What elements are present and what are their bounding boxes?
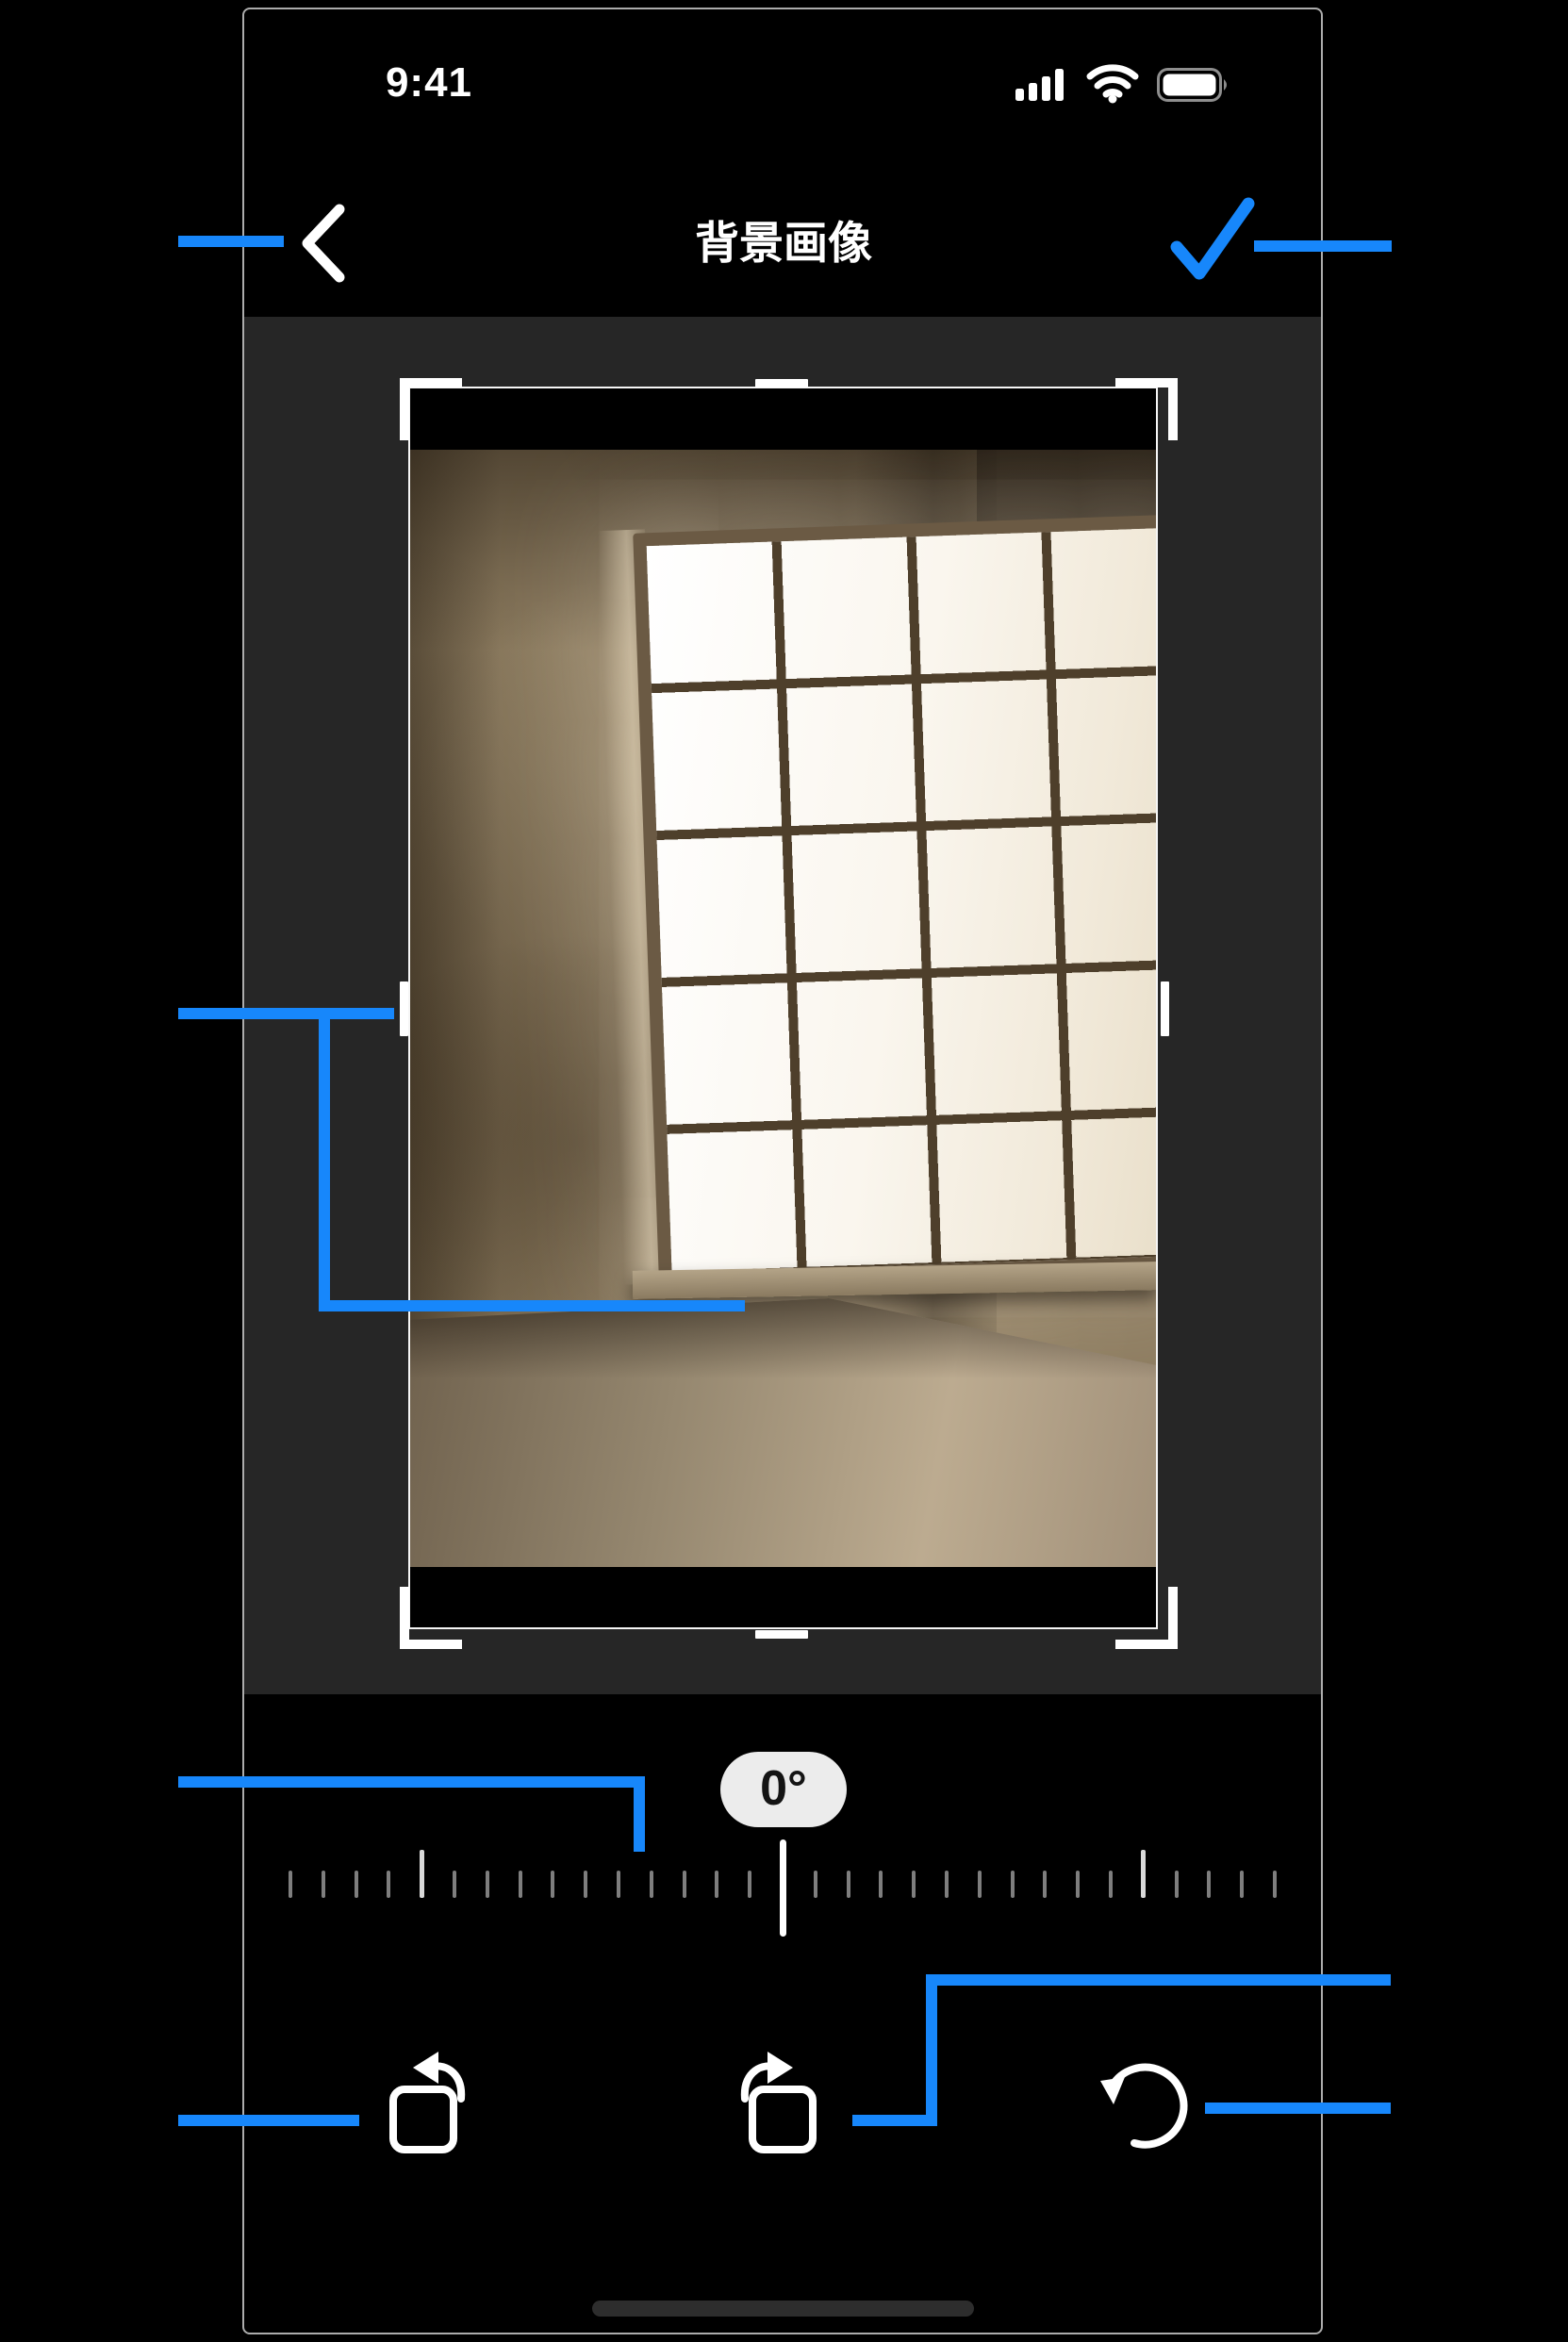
crop-edge-handle-bottom[interactable] (755, 1630, 808, 1639)
dial-tick (355, 1871, 358, 1898)
callout-line-crop-handle-h (178, 1008, 394, 1019)
dial-tick (519, 1871, 522, 1898)
crop-corner-handle-bottom-right[interactable] (1115, 1587, 1178, 1649)
rotate-ccw-button[interactable] (375, 2040, 479, 2153)
callout-line-confirm-button (1254, 240, 1392, 252)
rotate-cw-button[interactable] (727, 2040, 831, 2153)
rotate-counterclockwise-icon (393, 2052, 461, 2150)
callout-line-crop-handle-v (319, 1008, 330, 1311)
dial-major-tick (420, 1850, 424, 1898)
dial-tick (1240, 1871, 1244, 1898)
dial-tick (486, 1871, 489, 1898)
dial-major-tick (1141, 1850, 1146, 1898)
callout-line-dial-h (178, 1776, 645, 1788)
dial-tick (1207, 1871, 1211, 1898)
angle-value-badge: 0° (720, 1752, 847, 1827)
dial-tick (584, 1871, 587, 1898)
dial-tick (814, 1871, 817, 1898)
reset-rotation-button[interactable] (1098, 2058, 1192, 2152)
rotate-clockwise-icon (745, 2052, 813, 2150)
dial-tick (322, 1871, 325, 1898)
callout-line-rotate-cw-v (926, 1974, 937, 2126)
callout-line-rotate-cw-h (926, 1974, 1391, 1986)
callout-line-reset (1205, 2103, 1391, 2114)
crop-corner-handle-top-right[interactable] (1115, 378, 1178, 440)
crop-corner-handle-top-left[interactable] (400, 378, 462, 440)
dial-tick (945, 1871, 949, 1898)
dial-tick (847, 1871, 850, 1898)
callout-line-crop-area (319, 1300, 745, 1311)
dial-tick (551, 1871, 554, 1898)
dial-tick (1109, 1871, 1113, 1898)
crop-edge-handle-top[interactable] (755, 379, 808, 388)
crop-corner-handle-bottom-left[interactable] (400, 1587, 462, 1649)
callout-line-rotate-ccw (178, 2115, 359, 2126)
dial-tick (289, 1871, 292, 1898)
dial-tick (650, 1871, 653, 1898)
dial-tick (879, 1871, 883, 1898)
dial-tick (912, 1871, 916, 1898)
dial-tick (683, 1871, 686, 1898)
dial-tick (617, 1871, 620, 1898)
reset-rotation-icon (1100, 2068, 1183, 2145)
rotation-dial[interactable] (0, 0, 1568, 2342)
callout-line-dial-v (634, 1776, 645, 1852)
dial-tick (1043, 1871, 1047, 1898)
dial-tick (978, 1871, 982, 1898)
callout-line-back-button (178, 236, 284, 247)
dial-tick (1273, 1871, 1277, 1898)
dial-tick (387, 1871, 390, 1898)
dial-tick (1076, 1871, 1080, 1898)
dial-tick (1175, 1871, 1179, 1898)
dial-tick (715, 1871, 718, 1898)
dial-center-indicator (780, 1839, 786, 1937)
crop-edge-handle-right[interactable] (1161, 981, 1169, 1036)
screenshot-canvas: 9:41 背景画像 (0, 0, 1568, 2342)
crop-edge-handle-left[interactable] (400, 981, 408, 1036)
dial-tick (453, 1871, 456, 1898)
dial-tick (748, 1871, 751, 1898)
callout-line-rotate-cw-b (852, 2115, 937, 2126)
dial-tick (1011, 1871, 1015, 1898)
